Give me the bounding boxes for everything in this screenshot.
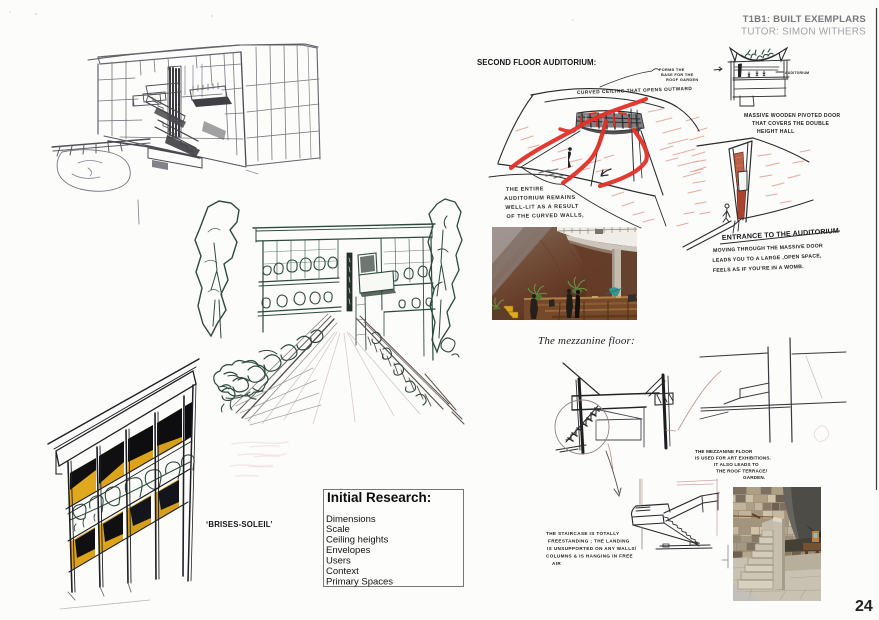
svg-text:Envelopes: Envelopes bbox=[326, 545, 371, 556]
svg-text:AIR: AIR bbox=[552, 561, 561, 566]
svg-text:IT ALSO LEADS TO: IT ALSO LEADS TO bbox=[714, 462, 759, 467]
svg-text:T1B1: BUILT EXEMPLARS: T1B1: BUILT EXEMPLARS bbox=[743, 14, 867, 25]
svg-text:Users: Users bbox=[326, 556, 351, 567]
svg-text:The mezzanine floor:: The mezzanine floor: bbox=[538, 335, 635, 347]
svg-text:HEIGHT HALL: HEIGHT HALL bbox=[757, 129, 795, 135]
svg-text:FREESTANDING ; THE LANDING: FREESTANDING ; THE LANDING bbox=[548, 539, 630, 544]
svg-text:THE STAIRCASE IS TOTALLY: THE STAIRCASE IS TOTALLY bbox=[546, 531, 620, 536]
svg-text:Scale: Scale bbox=[326, 524, 350, 535]
svg-text:COLUMNS & IS HANGING IN FREE: COLUMNS & IS HANGING IN FREE bbox=[546, 554, 633, 559]
svg-text:MASSIVE WOODEN PIVOTED DOOR: MASSIVE WOODEN PIVOTED DOOR bbox=[744, 113, 840, 119]
svg-text:THE ROOF TERRACE/: THE ROOF TERRACE/ bbox=[716, 469, 768, 474]
svg-text:‘BRISES-SOLEIL’: ‘BRISES-SOLEIL’ bbox=[206, 520, 273, 529]
svg-text:AUDITORIUM REMAINS: AUDITORIUM REMAINS bbox=[504, 195, 576, 202]
svg-text:SECOND FLOOR AUDITORIUM:: SECOND FLOOR AUDITORIUM: bbox=[477, 58, 596, 67]
svg-text:ROOF GARDEN: ROOF GARDEN bbox=[666, 77, 698, 82]
svg-text:TUTOR: SIMON WITHERS: TUTOR: SIMON WITHERS bbox=[741, 27, 866, 38]
svg-text:IS USED FOR ART EXHIBITIONS.: IS USED FOR ART EXHIBITIONS. bbox=[695, 456, 771, 461]
svg-text:Initial Research:: Initial Research: bbox=[327, 490, 431, 505]
svg-text:Context: Context bbox=[326, 566, 359, 577]
svg-text:IS UNSUPPORTED ON ANY WALLS/: IS UNSUPPORTED ON ANY WALLS/ bbox=[547, 546, 637, 551]
svg-text:AUDITORIUM: AUDITORIUM bbox=[785, 71, 809, 75]
svg-text:24: 24 bbox=[855, 598, 873, 615]
svg-text:THE ENTIRE: THE ENTIRE bbox=[506, 186, 544, 193]
svg-text:Primary Spaces: Primary Spaces bbox=[326, 577, 393, 588]
svg-text:GARDEN.: GARDEN. bbox=[743, 475, 765, 480]
svg-text:THAT COVERS THE DOUBLE: THAT COVERS THE DOUBLE bbox=[752, 121, 830, 127]
svg-text:THE MEZZANINE FLOOR: THE MEZZANINE FLOOR bbox=[695, 449, 753, 454]
svg-text:Ceiling heights: Ceiling heights bbox=[326, 535, 389, 546]
